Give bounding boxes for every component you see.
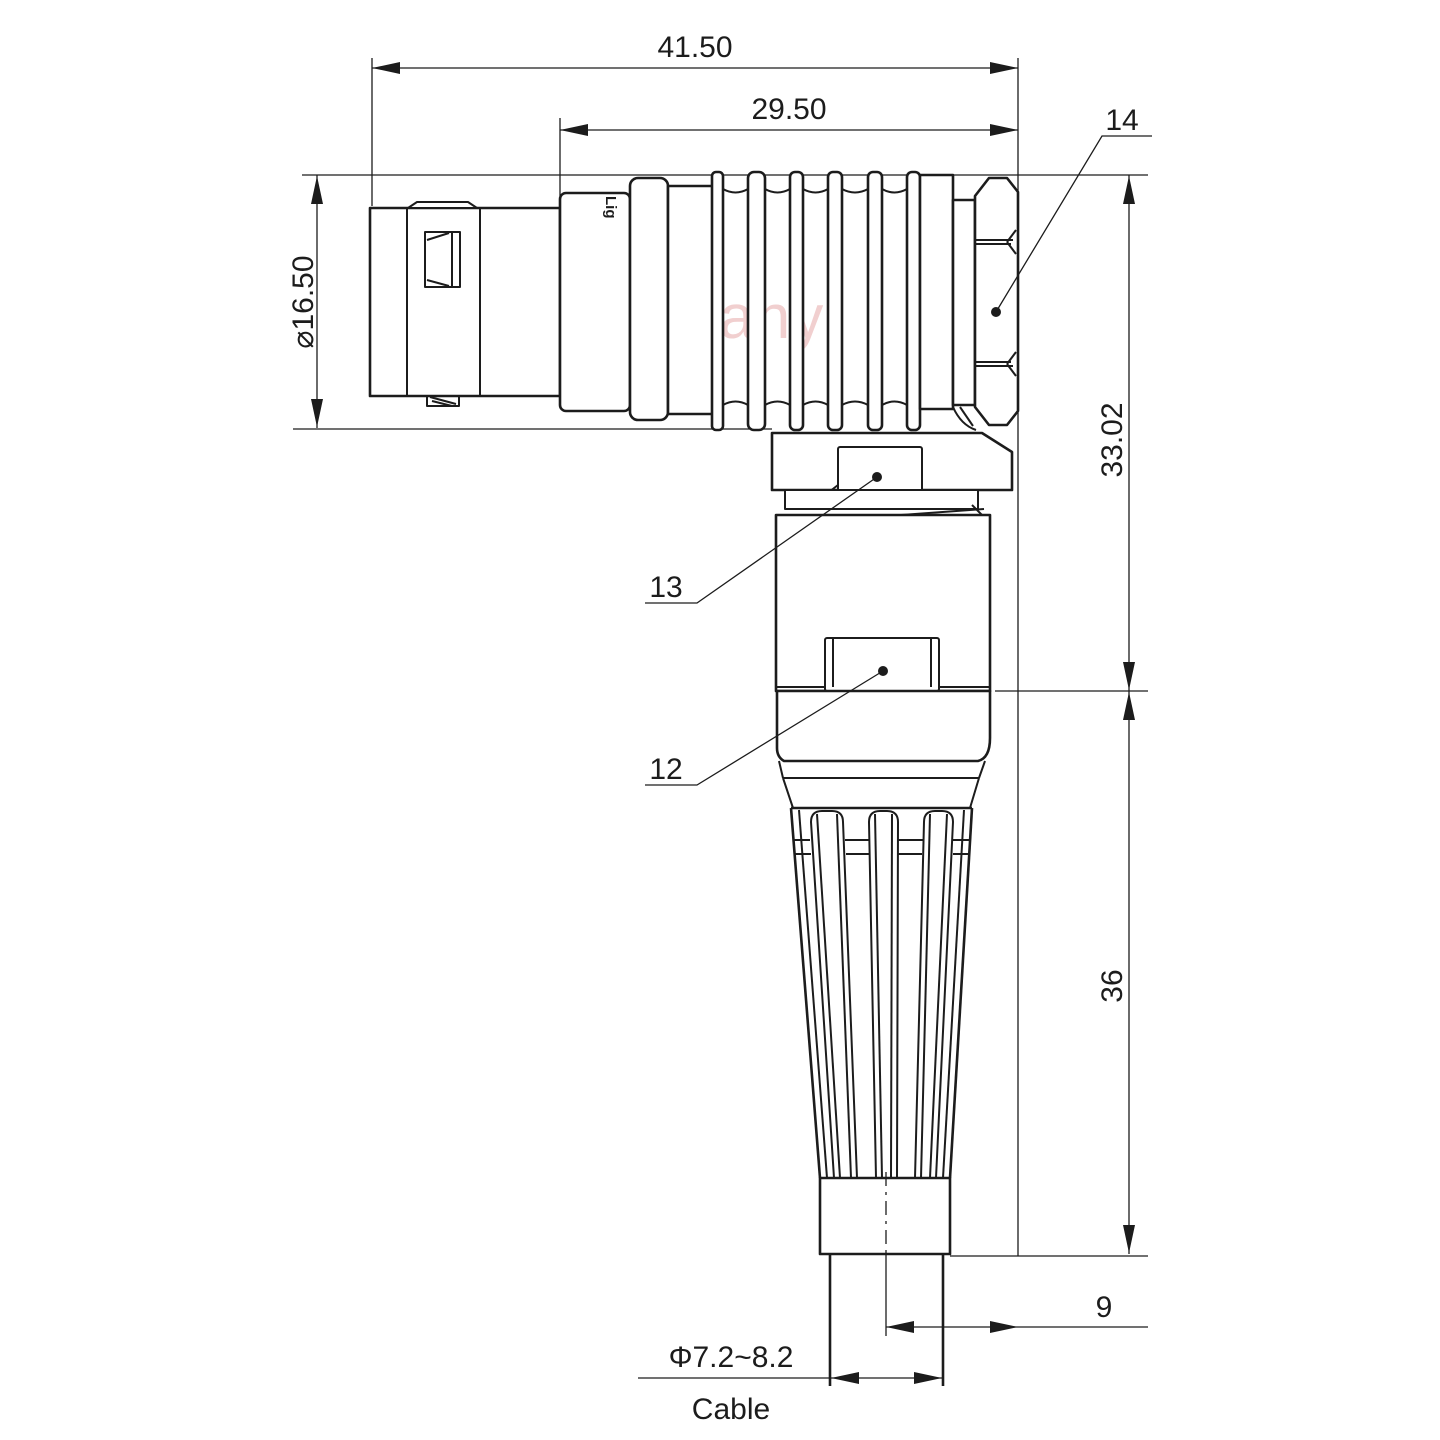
collar-step-ring	[785, 490, 978, 509]
body-lower-section	[777, 691, 990, 761]
dim-lower-height-text: 36	[1096, 969, 1129, 1002]
engineering-drawing-canvas: Lightany Lig	[0, 0, 1440, 1440]
connector-drawing: Lightany Lig	[0, 0, 1440, 1440]
dim-rear-length-text: 29.50	[751, 93, 826, 126]
brand-stamp-text: Lig	[602, 196, 619, 219]
latch-button-13	[838, 447, 922, 492]
mid-collar: Lig	[560, 178, 714, 420]
dim-upper-height-text: 33.02	[1096, 402, 1129, 477]
alignment-key	[408, 202, 477, 208]
bottom-key-notch	[427, 396, 459, 406]
part-label-12-text: 12	[649, 753, 682, 786]
dim-overall-length-text: 41.50	[657, 31, 732, 64]
leader-dot-12	[878, 666, 888, 676]
dim-overall-length: 41.50	[372, 31, 1018, 74]
gland-ribs	[712, 172, 976, 430]
dim-axis-offset: 9	[886, 1291, 1148, 1333]
dim-cable-diameter: Φ7.2~8.2 Cable	[638, 1341, 943, 1426]
dim-cable-diameter-text: Φ7.2~8.2	[669, 1341, 794, 1374]
dim-front-diameter: ⌀16.50	[287, 175, 323, 428]
strain-relief-boot	[791, 808, 972, 1178]
cable-bushing	[820, 1172, 950, 1386]
release-collar	[772, 433, 1012, 509]
part-label-13-text: 13	[649, 571, 682, 604]
plug-shell	[370, 202, 560, 406]
bayonet-window	[425, 232, 460, 287]
leader-dot-13	[872, 472, 882, 482]
body-button-12	[825, 638, 939, 691]
leader-dot-14	[991, 307, 1001, 317]
part-label-14-text: 14	[1105, 104, 1138, 137]
dim-front-diameter-text: ⌀16.50	[287, 255, 320, 348]
dim-rear-length: 29.50	[560, 93, 1018, 136]
cable-caption-text: Cable	[692, 1393, 770, 1426]
dim-axis-offset-text: 9	[1096, 1291, 1113, 1324]
main-body	[776, 515, 990, 808]
